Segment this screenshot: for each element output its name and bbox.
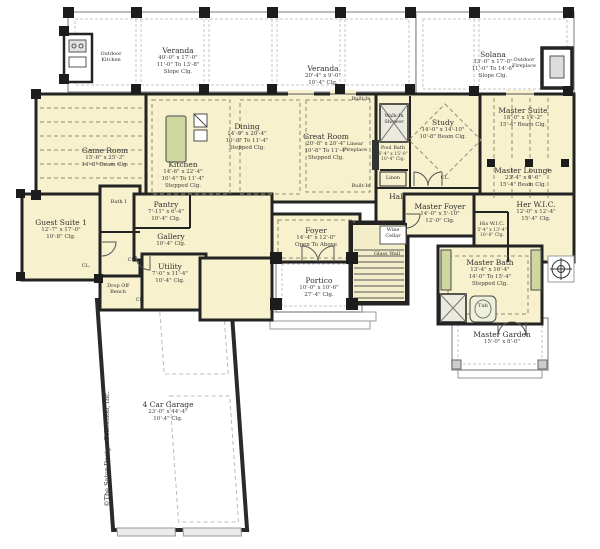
outdoor-fireplace-fixture bbox=[542, 48, 572, 88]
garage-structure bbox=[97, 300, 248, 536]
compass-icon bbox=[548, 256, 574, 282]
staircase bbox=[352, 224, 406, 302]
floor-plan: Veranda 40'-0" x 17'-0" 11'-0" To 13'-8"… bbox=[0, 0, 600, 549]
linear-fireplace bbox=[372, 140, 379, 170]
floorplan-drawing bbox=[0, 0, 600, 549]
copyright-text: ©The Sater Design Collection, Inc. bbox=[103, 369, 113, 529]
pool-bath-shower bbox=[380, 104, 408, 142]
